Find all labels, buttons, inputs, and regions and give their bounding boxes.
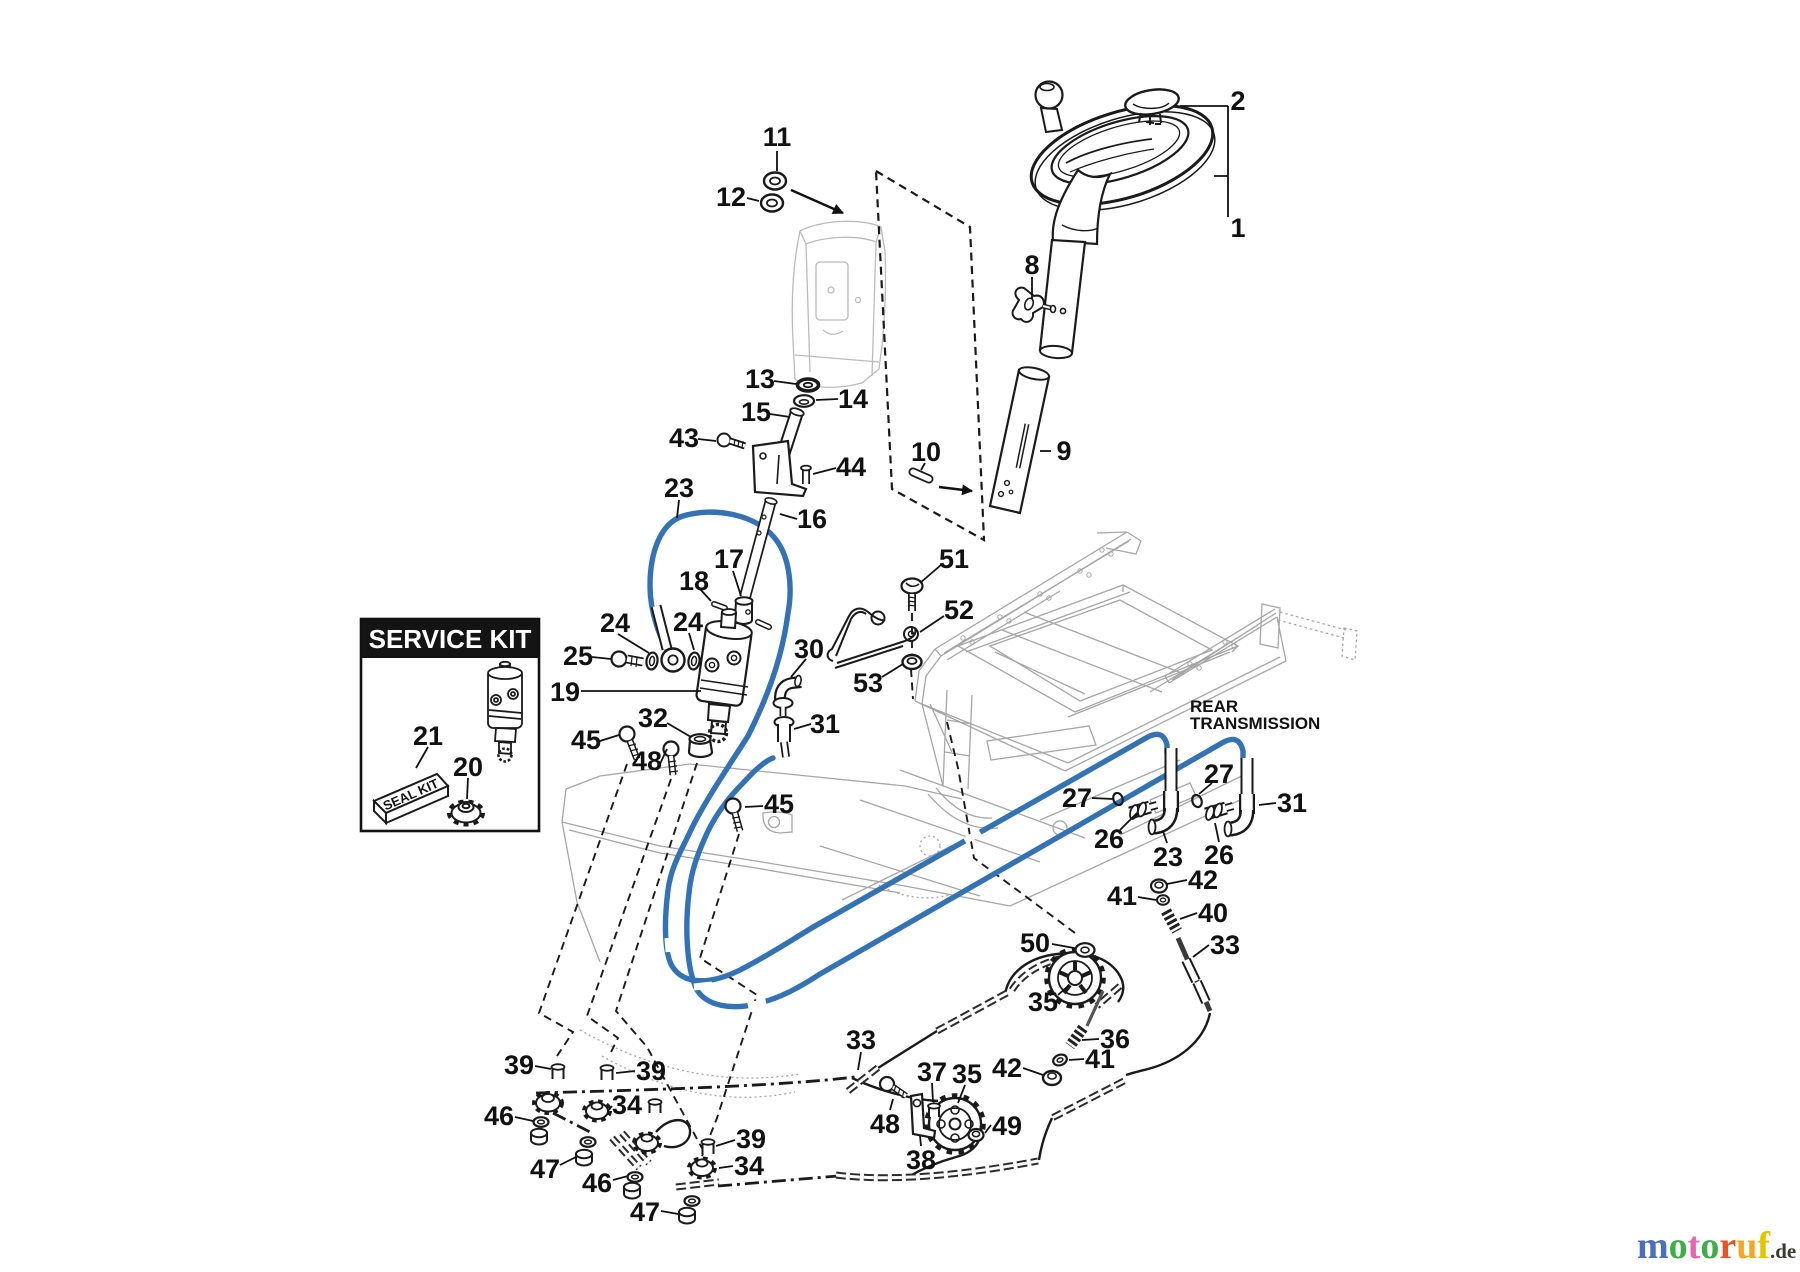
svg-text:45: 45 [571,725,601,755]
svg-text:39: 39 [504,1050,534,1080]
svg-text:51: 51 [939,544,969,574]
svg-text:48: 48 [632,746,662,776]
svg-text:42: 42 [1188,865,1218,895]
svg-text:8: 8 [1024,250,1039,280]
svg-text:18: 18 [679,566,709,596]
svg-text:27: 27 [1062,783,1092,813]
svg-text:47: 47 [630,1197,660,1227]
svg-text:30: 30 [794,634,824,664]
svg-text:26: 26 [1094,824,1124,854]
svg-text:14: 14 [838,384,868,414]
svg-text:TRANSMISSION: TRANSMISSION [1190,714,1320,733]
svg-text:45: 45 [764,789,794,819]
svg-text:24: 24 [673,607,703,637]
svg-text:23: 23 [1153,842,1183,872]
svg-text:50: 50 [1020,928,1050,958]
svg-text:41: 41 [1107,881,1137,911]
svg-text:31: 31 [810,709,840,739]
svg-text:46: 46 [484,1101,514,1131]
svg-text:1: 1 [1230,213,1245,243]
svg-text:40: 40 [1198,898,1228,928]
svg-text:32: 32 [638,703,668,733]
svg-text:11: 11 [763,122,792,152]
svg-text:34: 34 [734,1151,764,1181]
svg-text:37: 37 [917,1057,947,1087]
svg-text:38: 38 [906,1145,936,1175]
svg-text:20: 20 [453,752,483,782]
svg-text:24: 24 [600,608,630,638]
svg-text:motoruf.de: motoruf.de [1637,1225,1796,1267]
svg-text:53: 53 [853,668,883,698]
svg-text:27: 27 [1204,759,1234,789]
svg-text:41: 41 [1085,1044,1115,1074]
svg-text:44: 44 [836,452,866,482]
svg-text:33: 33 [1210,930,1240,960]
svg-text:19: 19 [550,677,580,707]
svg-text:31: 31 [1277,788,1307,818]
svg-text:49: 49 [992,1111,1022,1141]
svg-text:SERVICE KIT: SERVICE KIT [369,624,532,654]
svg-text:47: 47 [530,1154,560,1184]
svg-text:43: 43 [669,423,699,453]
svg-text:23: 23 [664,473,694,503]
svg-text:21: 21 [413,721,443,751]
svg-text:35: 35 [952,1059,982,1089]
svg-text:52: 52 [944,595,974,625]
svg-text:15: 15 [741,397,771,427]
svg-text:34: 34 [612,1090,642,1120]
svg-text:13: 13 [745,364,775,394]
svg-text:10: 10 [911,437,941,467]
svg-text:9: 9 [1056,436,1071,466]
svg-text:17: 17 [714,544,744,574]
svg-text:25: 25 [563,641,593,671]
svg-text:2: 2 [1230,86,1245,116]
svg-text:33: 33 [846,1025,876,1055]
svg-text:16: 16 [797,504,827,534]
svg-text:12: 12 [716,182,746,212]
svg-text:39: 39 [736,1124,766,1154]
svg-text:35: 35 [1028,987,1058,1017]
svg-text:46: 46 [582,1168,612,1198]
svg-text:39: 39 [636,1056,666,1086]
svg-text:42: 42 [992,1053,1022,1083]
svg-text:48: 48 [870,1109,900,1139]
